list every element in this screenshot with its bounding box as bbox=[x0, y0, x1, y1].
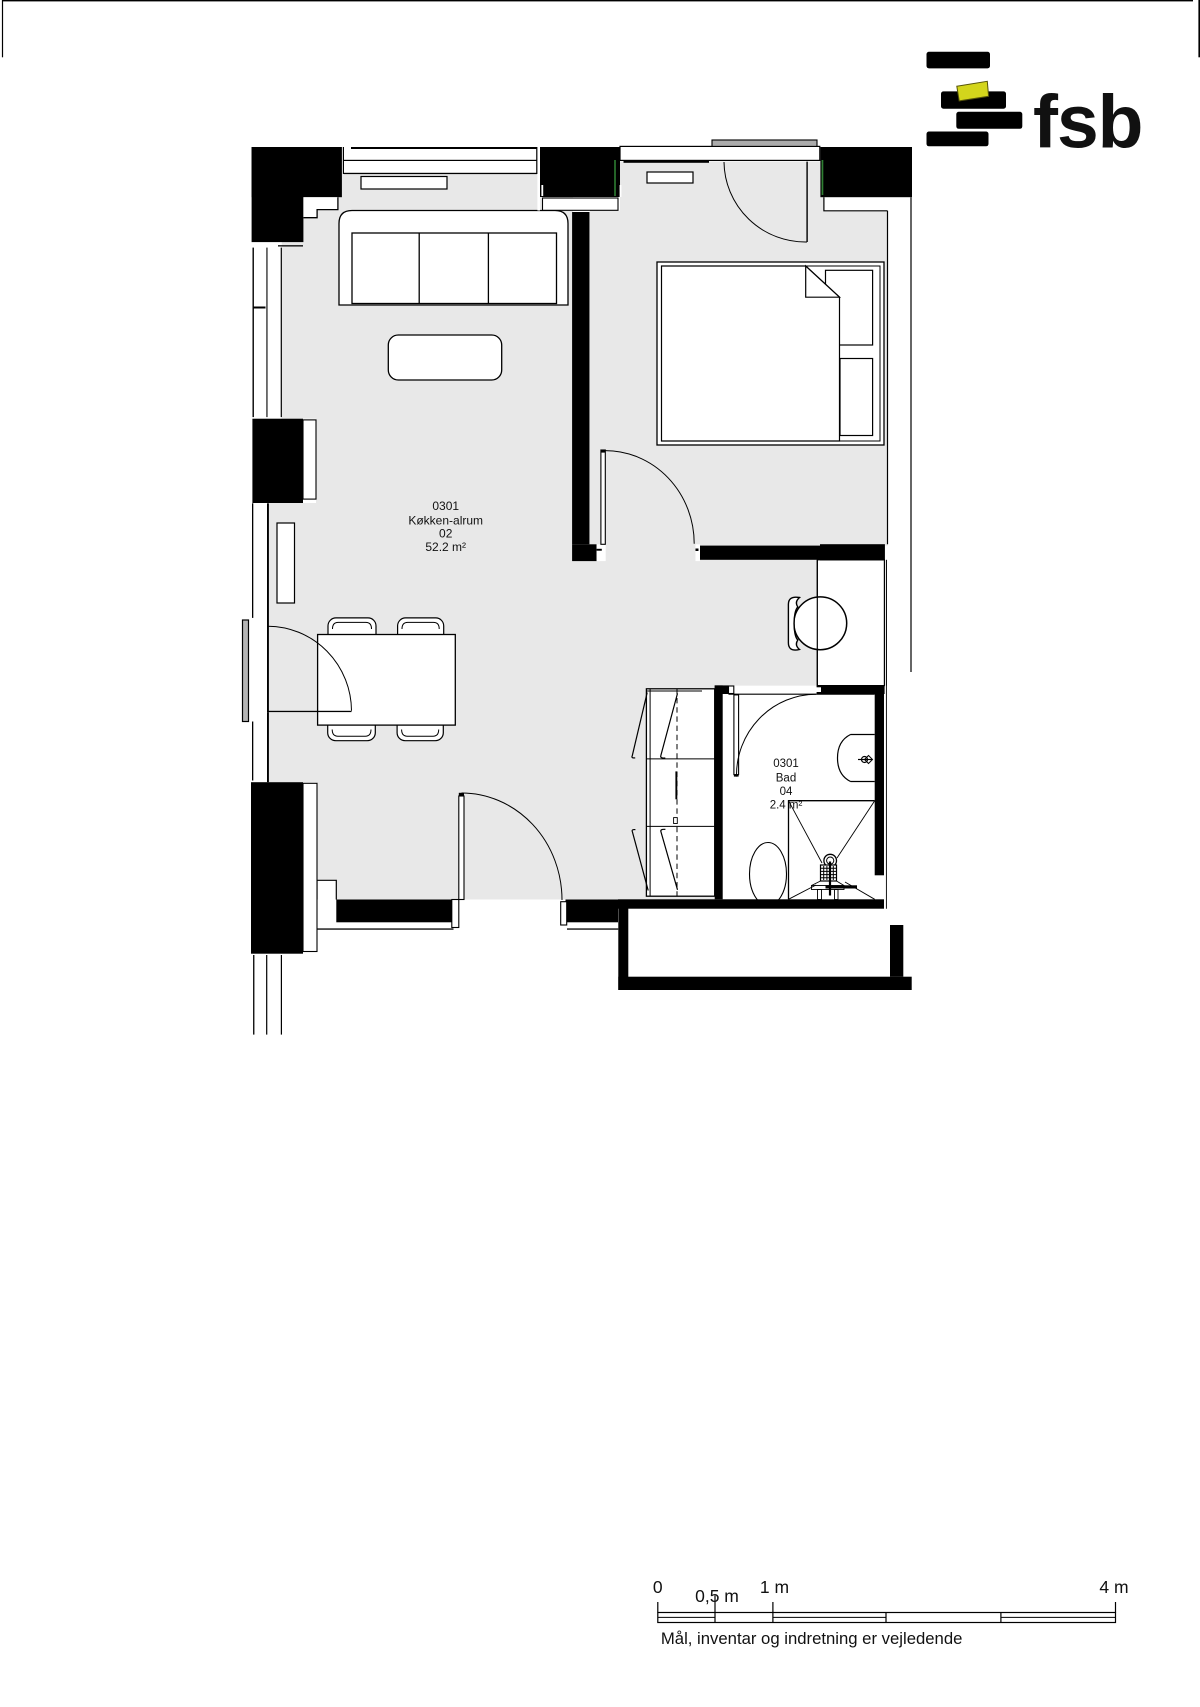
svg-text:0: 0 bbox=[653, 1577, 663, 1597]
svg-text:0301: 0301 bbox=[773, 758, 799, 770]
svg-text:Køkken-alrum: Køkken-alrum bbox=[408, 514, 483, 528]
svg-text:04: 04 bbox=[780, 786, 793, 798]
svg-text:Bad: Bad bbox=[776, 773, 796, 785]
svg-text:0,5 m: 0,5 m bbox=[695, 1586, 739, 1606]
svg-text:4 m: 4 m bbox=[1099, 1577, 1128, 1597]
svg-text:1 m: 1 m bbox=[760, 1577, 789, 1597]
svg-text:02: 02 bbox=[439, 527, 453, 541]
svg-text:fsb: fsb bbox=[1033, 80, 1143, 164]
svg-text:Mål, inventar og indretning er: Mål, inventar og indretning er vejledend… bbox=[661, 1629, 963, 1648]
svg-text:2.4 m²: 2.4 m² bbox=[770, 799, 803, 811]
svg-text:0301: 0301 bbox=[432, 499, 459, 513]
svg-text:52.2 m²: 52.2 m² bbox=[425, 540, 466, 554]
